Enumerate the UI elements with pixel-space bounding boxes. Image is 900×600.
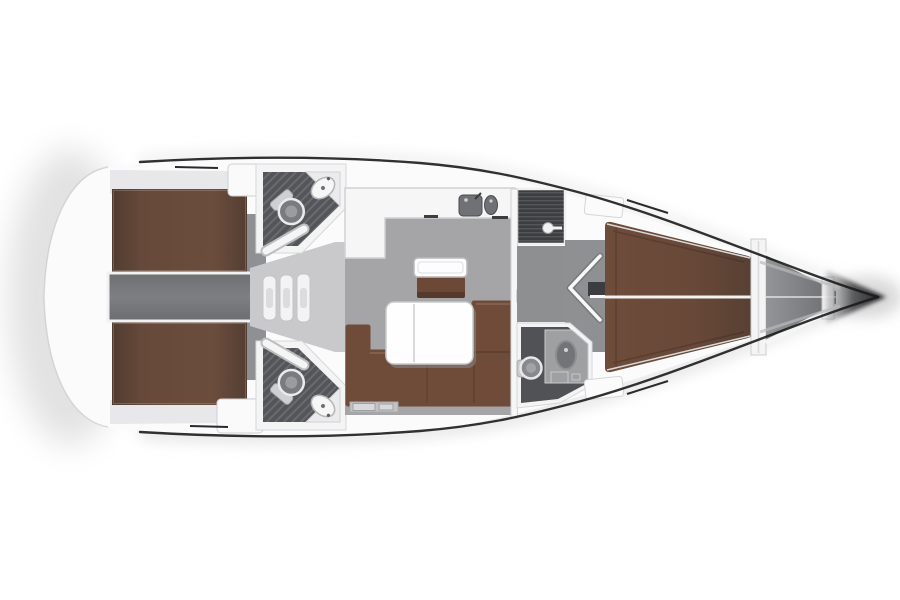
bow-area <box>751 239 886 355</box>
forward-cabinet-bottom <box>584 376 624 400</box>
toilet-icon <box>517 358 542 379</box>
aft-berth-top <box>112 189 247 272</box>
galley-appliance-compartment <box>517 189 565 244</box>
nav-seat-shade <box>417 292 465 298</box>
traveler-line-top <box>175 167 218 168</box>
sofa-step <box>350 402 398 412</box>
step-box <box>379 404 393 410</box>
engine-bay <box>108 273 262 321</box>
nav-seat-top <box>414 258 467 277</box>
forward-cabinet-top <box>584 194 624 218</box>
companionway-steps <box>263 274 310 322</box>
faucet-dot <box>464 198 468 202</box>
galley-sink-oval <box>485 196 498 215</box>
counter-handle <box>492 216 508 219</box>
floor-plan-canvas <box>0 0 900 600</box>
vestibule-floor <box>517 246 565 322</box>
washbasin-icon <box>556 341 576 369</box>
faucet-dot <box>564 348 568 352</box>
traveler-line-bottom <box>190 426 228 427</box>
faucet-dot <box>489 199 492 202</box>
step-box <box>353 404 375 411</box>
galley-sink-square <box>459 195 482 216</box>
step-shade <box>283 288 290 308</box>
step-shade <box>300 288 307 308</box>
corridor-step <box>588 282 605 296</box>
aft-berth-bottom <box>112 322 247 405</box>
folding-table <box>386 302 476 368</box>
nav-seat <box>414 258 467 298</box>
step-shade <box>266 288 273 308</box>
table-top <box>386 302 473 364</box>
yacht-floor-plan <box>0 0 900 600</box>
counter-handle <box>424 215 438 218</box>
